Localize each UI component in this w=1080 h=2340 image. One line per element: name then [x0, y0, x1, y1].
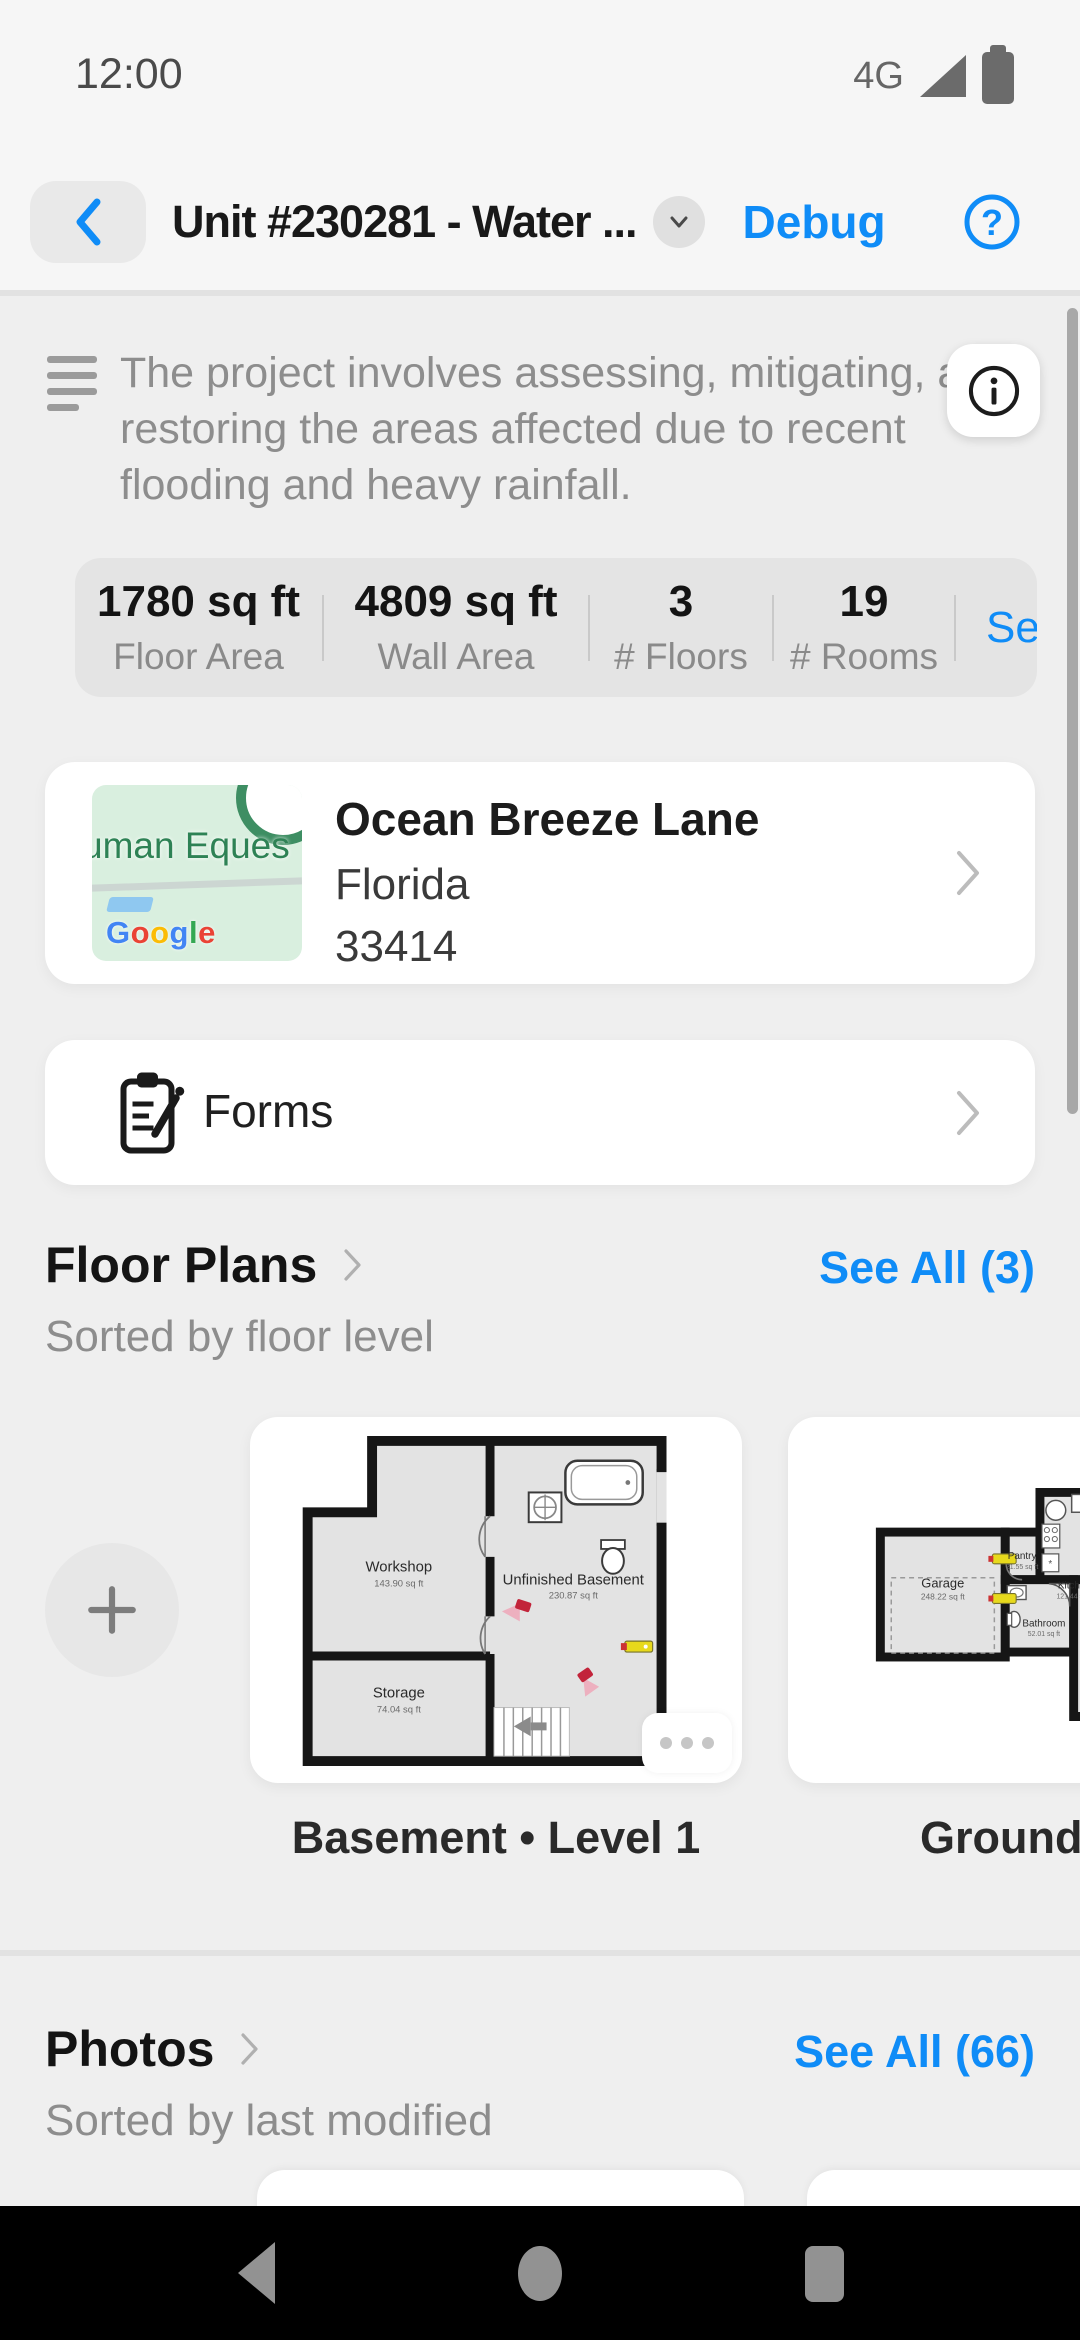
floor-plans-see-all-link[interactable]: See All (3) — [819, 1242, 1035, 1294]
section-divider — [0, 1950, 1080, 1956]
plus-icon — [83, 1581, 141, 1639]
map-water-marker — [106, 897, 154, 912]
photos-subtitle: Sorted by last modified — [45, 2096, 493, 2146]
chevron-left-icon — [68, 194, 108, 250]
stat-wall-area: 4809 sq ft Wall Area — [324, 577, 588, 678]
chevron-right-icon — [337, 1245, 367, 1285]
floor-plans-header[interactable]: Floor Plans — [45, 1236, 367, 1294]
svg-text:Kitche: Kitche — [1058, 1581, 1080, 1592]
back-button[interactable] — [30, 181, 146, 263]
svg-text:Workshop: Workshop — [366, 1560, 433, 1576]
info-icon — [967, 364, 1021, 418]
photos-header[interactable]: Photos — [45, 2020, 264, 2078]
help-button[interactable]: ? — [962, 192, 1022, 252]
debug-link[interactable]: Debug — [743, 195, 886, 249]
floor-plans-title: Floor Plans — [45, 1236, 317, 1294]
photos-see-all-link[interactable]: See All (66) — [794, 2026, 1035, 2078]
forms-card[interactable]: Forms — [45, 1040, 1035, 1185]
phone-screen: 12:00 4G Unit #230281 - Water ... Debug — [0, 0, 1080, 2340]
stats-see-all-link[interactable]: See All — [956, 603, 1037, 653]
map-thumbnail: uman Eques Google — [92, 785, 302, 961]
status-time: 12:00 — [75, 50, 183, 99]
forms-label: Forms — [203, 1084, 333, 1138]
title-dropdown-button[interactable] — [653, 196, 705, 248]
add-floor-plan-button[interactable] — [45, 1543, 179, 1677]
svg-text:143.90 sq ft: 143.90 sq ft — [374, 1578, 424, 1589]
stats-bar[interactable]: 1780 sq ft Floor Area 4809 sq ft Wall Ar… — [75, 558, 1037, 697]
stat-floors: 3 # Floors — [590, 577, 772, 678]
map-road — [92, 877, 302, 891]
floor-plan-label-basement: Basement • Level 1 — [250, 1812, 742, 1864]
scrollbar[interactable] — [1067, 308, 1078, 1114]
photos-title: Photos — [45, 2020, 214, 2078]
info-button[interactable] — [947, 344, 1040, 437]
forms-clipboard-icon — [113, 1068, 191, 1163]
svg-text:Storage: Storage — [373, 1686, 425, 1702]
ground-floor-plan-image: * Garage 248.22 sq ft Pantry 21.55 sq ft… — [802, 1429, 1080, 1771]
help-icon: ? — [962, 192, 1022, 252]
floor-plan-card-basement[interactable]: Workshop 143.90 sq ft Unfinished Basemen… — [250, 1417, 742, 1783]
svg-text:74.04 sq ft: 74.04 sq ft — [377, 1704, 421, 1715]
description-icon — [47, 356, 97, 420]
chevron-down-icon — [664, 207, 694, 237]
stat-floor-area: 1780 sq ft Floor Area — [75, 577, 322, 678]
more-options-button[interactable] — [642, 1713, 732, 1773]
map-place-label: uman Eques — [92, 825, 290, 867]
svg-text:Unfinished Basement: Unfinished Basement — [503, 1573, 645, 1589]
svg-text:230.87 sq ft: 230.87 sq ft — [549, 1590, 599, 1601]
svg-text:52.01 sq ft: 52.01 sq ft — [1028, 1631, 1060, 1638]
nav-back-button[interactable] — [238, 2242, 275, 2304]
address-zip: 33414 — [335, 922, 457, 972]
svg-text:Pantry: Pantry — [1008, 1551, 1037, 1562]
svg-text:Bathroom: Bathroom — [1022, 1618, 1065, 1629]
svg-text:248.22 sq ft: 248.22 sq ft — [921, 1592, 966, 1602]
signal-icon — [920, 55, 966, 97]
top-bar: 12:00 4G Unit #230281 - Water ... Debug — [0, 0, 1080, 296]
chevron-right-icon — [945, 845, 989, 901]
battery-icon — [982, 52, 1014, 104]
floor-plan-label-ground: Ground F — [920, 1812, 1080, 1864]
address-card[interactable]: uman Eques Google Ocean Breeze Lane Flor… — [45, 762, 1035, 984]
floor-plan-card-ground[interactable]: * Garage 248.22 sq ft Pantry 21.55 sq ft… — [788, 1417, 1080, 1783]
svg-text:?: ? — [981, 202, 1003, 243]
svg-text:Garage: Garage — [921, 1576, 964, 1591]
google-logo: Google — [106, 915, 216, 951]
floor-plans-subtitle: Sorted by floor level — [45, 1312, 434, 1362]
status-icons: 4G — [853, 52, 1014, 100]
project-description: The project involves assessing, mitigati… — [120, 345, 1025, 513]
header: Unit #230281 - Water ... Debug ? — [30, 178, 1022, 266]
nav-home-button[interactable] — [518, 2246, 562, 2301]
stat-rooms: 19 # Rooms — [774, 577, 954, 678]
nav-recents-button[interactable] — [805, 2246, 844, 2302]
address-state: Florida — [335, 860, 470, 910]
svg-text:21.55 sq ft: 21.55 sq ft — [1006, 1564, 1038, 1571]
network-type-label: 4G — [853, 55, 904, 98]
page-title: Unit #230281 - Water ... — [172, 196, 637, 248]
chevron-right-icon — [945, 1085, 989, 1141]
address-street: Ocean Breeze Lane — [335, 792, 759, 846]
chevron-right-icon — [234, 2029, 264, 2069]
svg-text:121.44 sq: 121.44 sq — [1056, 1594, 1080, 1601]
svg-text:*: * — [1048, 1559, 1052, 1570]
android-nav-bar — [0, 2206, 1080, 2340]
